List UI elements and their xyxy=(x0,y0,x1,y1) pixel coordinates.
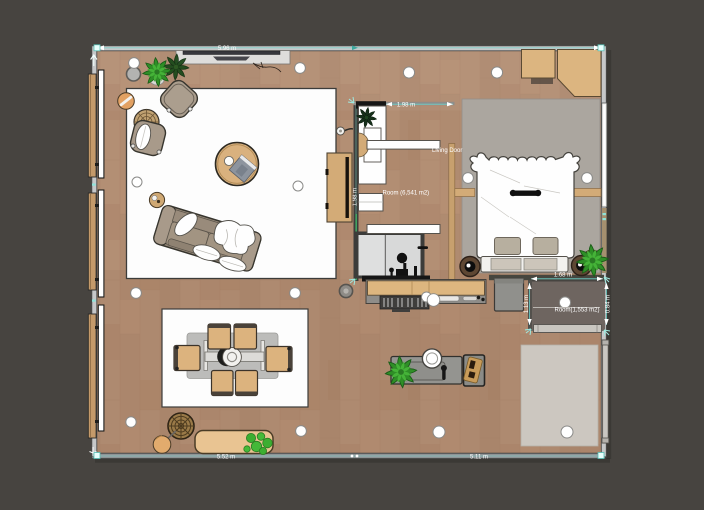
svg-text:5.52 m: 5.52 m xyxy=(217,454,235,460)
svg-text:1.98 m: 1.98 m xyxy=(353,188,359,206)
svg-text:Living Door: Living Door xyxy=(432,148,462,154)
svg-text:1.13 m: 1.13 m xyxy=(524,295,530,313)
svg-text:5.11 m: 5.11 m xyxy=(470,454,488,460)
svg-text:1.98 m: 1.98 m xyxy=(397,103,415,109)
svg-text:0.84 m: 0.84 m xyxy=(606,295,612,313)
svg-text:Room(1,553 m2): Room(1,553 m2) xyxy=(554,308,599,314)
svg-text:5.96 m: 5.96 m xyxy=(218,46,236,52)
svg-text:1.68 m: 1.68 m xyxy=(554,273,572,279)
svg-text:Room (6,541 m2): Room (6,541 m2) xyxy=(383,191,430,197)
